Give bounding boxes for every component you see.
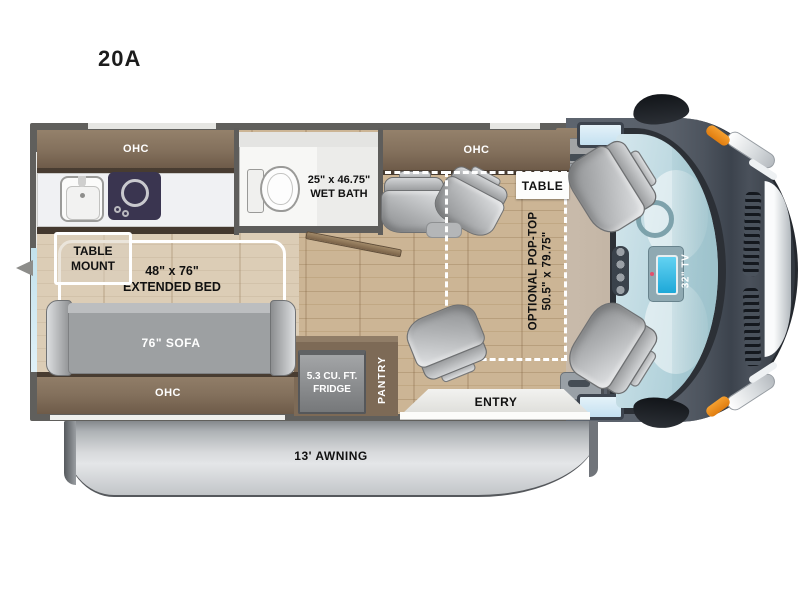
pantry-label: PANTRY [376,356,388,404]
rear-arrow-icon [16,260,33,276]
pop-top-outline-extension [385,171,447,178]
fridge: 5.3 CU. FT. FRIDGE [298,350,366,414]
sink-drain [80,193,85,198]
tv-label: 32" TV [681,254,692,288]
toilet-seat [267,173,293,205]
kitchen-overhead-cabinet: OHC [37,130,235,168]
front-grille-icon [743,288,762,367]
bed-name: EXTENDED BED [123,280,221,296]
wet-bath-dimensions: 25" x 46.75" [308,173,370,187]
wet-bath-wall [239,132,378,147]
floorplan-model-label: 20A [98,46,141,72]
bed-dimensions: 48" x 76" [145,264,199,280]
faucet-icon [78,176,86,187]
cooktop-knob-icon [122,210,129,217]
fridge-name: FRIDGE [313,384,351,397]
front-grille-icon [743,192,762,277]
table-mount-callout: TABLE MOUNT [54,232,132,285]
pop-top-dimensions: 50.5" x 79.75" [541,191,555,351]
dinette-ohc-label: OHC [464,144,490,156]
dinette-overhead-cabinet: OHC [383,130,570,170]
sofa-label: 76" SOFA [46,336,296,350]
sofa-overhead-cabinet: OHC [37,372,299,414]
wet-bath-name: WET BATH [310,187,367,201]
sofa-backrest [68,303,274,313]
entry-threshold [400,412,590,420]
top-window-strip [88,123,216,129]
awning-label: 13' AWNING [64,449,598,463]
sofa-ohc-label: OHC [155,387,181,399]
kitchen-ohc-label: OHC [123,143,149,155]
awning: 13' AWNING [64,421,598,497]
bottom-wall-trim [50,415,285,420]
pop-top-name: OPTIONAL POP-TOP [527,191,541,351]
entry-label: ENTRY [475,395,518,409]
pop-top-label: OPTIONAL POP-TOP 50.5" x 79.75" [527,191,556,351]
table-mount-line1: TABLE [73,244,112,258]
sink-basin [66,186,100,220]
table-mount-line2: MOUNT [71,259,115,273]
burner-ring-icon [121,179,149,207]
cupholder-panel [612,246,629,296]
tv-screen [656,255,678,295]
entry-step: ENTRY [402,389,590,414]
sofa: 76" SOFA [46,300,296,376]
console-indicator [650,272,654,276]
cooktop-knob-icon [114,206,121,213]
wet-bath-label: 25" x 46.75" WET BATH [300,170,378,204]
fridge-size: 5.3 CU. FT. [307,371,358,384]
toilet-icon [260,166,300,212]
top-window-strip [490,123,540,129]
galley-cabinet-top [294,336,398,342]
